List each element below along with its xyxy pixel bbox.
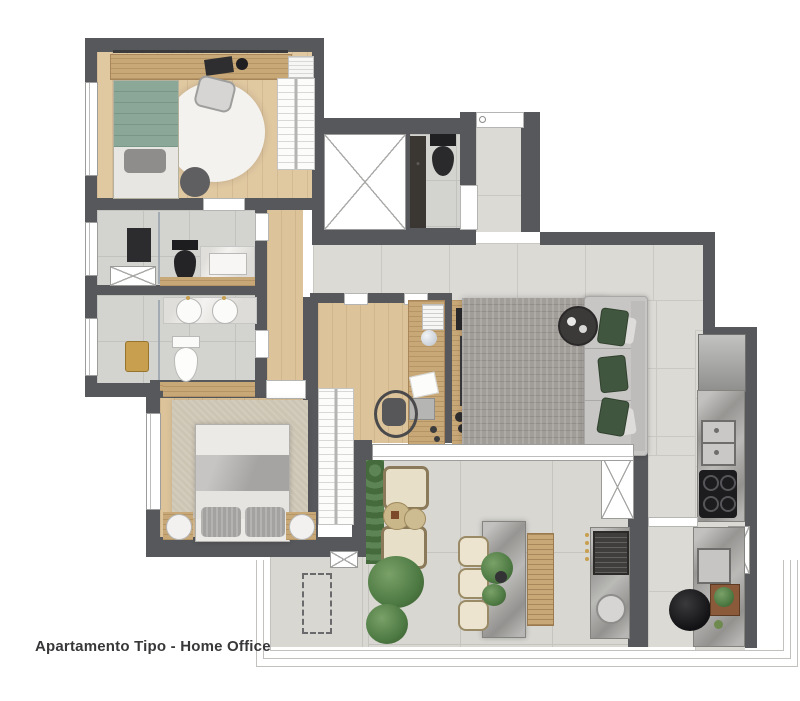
window <box>85 318 98 376</box>
sink <box>701 442 736 466</box>
vent-box <box>330 551 358 568</box>
burner <box>720 475 736 491</box>
gold-stool <box>125 341 149 372</box>
window <box>146 413 161 510</box>
burner <box>703 496 719 512</box>
shower-glass <box>158 212 160 284</box>
shower-tray <box>110 266 156 286</box>
table-plant <box>482 584 506 606</box>
green-pillow <box>597 307 630 347</box>
shower-glass <box>158 300 160 380</box>
small-plant <box>714 620 723 629</box>
linen-stack <box>288 56 314 78</box>
wall <box>97 285 255 295</box>
cooktop <box>699 470 737 518</box>
palm-plant <box>368 556 424 608</box>
vase <box>495 571 507 583</box>
dresser <box>163 385 255 397</box>
gold-faucet <box>222 296 226 300</box>
sink <box>697 548 731 584</box>
desk-item <box>434 436 440 442</box>
sink <box>701 420 736 444</box>
dining-bench <box>527 533 554 626</box>
dining-chair <box>458 600 489 631</box>
curtain-rail <box>113 50 288 53</box>
wall <box>540 232 715 245</box>
toilet-tank <box>430 134 456 146</box>
wood-shelf <box>160 277 255 286</box>
wardrobe <box>277 78 315 170</box>
globe <box>421 330 437 346</box>
wall <box>521 112 540 232</box>
bed-pillow <box>124 149 166 173</box>
door-bedroom1-bath <box>203 198 245 211</box>
coffee-table <box>558 306 598 346</box>
wall <box>312 228 468 245</box>
door-bathroom2 <box>255 330 269 358</box>
terrace-service-door <box>648 517 698 527</box>
side-table <box>404 508 426 530</box>
floor-plan: Apartamento Tipo - Home Office <box>0 0 800 701</box>
desk-item <box>430 426 437 433</box>
nightstand <box>166 514 192 540</box>
skewer <box>585 541 589 545</box>
kamado-grill <box>669 589 711 631</box>
dashed-reserve-area <box>302 573 332 634</box>
wall <box>85 198 315 210</box>
round-sink <box>212 298 238 324</box>
double-bed <box>195 424 290 542</box>
door-handle <box>479 116 486 123</box>
entry-floor <box>476 127 521 232</box>
pouf <box>180 167 210 197</box>
pillow <box>201 507 241 537</box>
herb-plant <box>714 587 734 607</box>
fridge <box>698 334 746 392</box>
corridor-floor <box>267 210 303 380</box>
sink-basin <box>209 253 247 275</box>
desk-lamp <box>236 58 248 70</box>
door-master-bedroom <box>266 380 306 399</box>
round-sink <box>176 298 202 324</box>
cup <box>567 317 576 326</box>
hall-floor <box>313 243 703 300</box>
shower-column <box>127 228 151 262</box>
elevator-shaft <box>324 134 406 230</box>
skewer <box>585 533 589 537</box>
gold-faucet <box>186 296 190 300</box>
door-bathroom1 <box>255 213 269 241</box>
office-chair <box>382 398 406 426</box>
drain <box>714 450 719 455</box>
wall <box>703 245 715 333</box>
shaft <box>601 455 634 519</box>
palm-plant <box>366 604 408 644</box>
burner <box>703 475 719 491</box>
green-pillow <box>597 355 629 394</box>
bed-duvet <box>114 81 178 147</box>
single-bed <box>113 80 179 199</box>
window <box>85 222 98 276</box>
skewer <box>585 557 589 561</box>
sofa-seam <box>585 348 631 349</box>
drain <box>714 428 719 433</box>
wall <box>745 333 757 648</box>
burner <box>720 496 736 512</box>
master-wardrobe <box>318 388 354 525</box>
cup <box>579 325 587 333</box>
plan-title: Apartamento Tipo - Home Office <box>35 638 271 655</box>
door-office-1 <box>344 293 368 305</box>
window <box>85 82 98 176</box>
pillow <box>245 507 285 537</box>
tray <box>391 511 399 519</box>
nightstand <box>289 514 315 540</box>
sliding-glass-door <box>372 444 634 461</box>
bbq-grill <box>593 531 629 575</box>
book-stack <box>422 304 444 330</box>
toilet-tank <box>172 240 198 250</box>
wall <box>324 118 468 134</box>
door-lavabo <box>460 185 478 230</box>
bed-blanket <box>196 455 289 493</box>
lavabo-counter <box>410 136 426 228</box>
grill-sink <box>596 594 626 624</box>
skewer <box>585 549 589 553</box>
